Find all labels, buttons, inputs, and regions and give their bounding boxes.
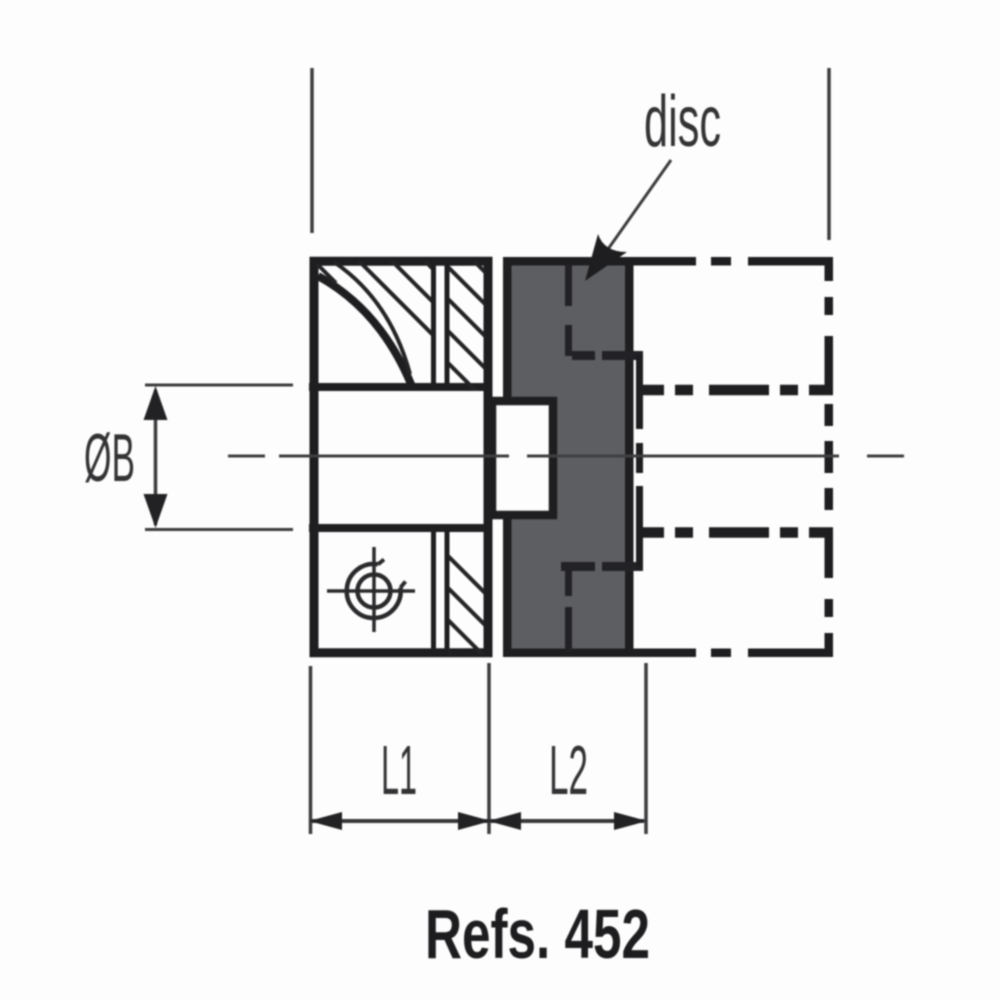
svg-text:ØB: ØB bbox=[84, 420, 135, 496]
svg-text:Refs. 452: Refs. 452 bbox=[425, 895, 650, 973]
svg-text:disc: disc bbox=[644, 82, 721, 162]
svg-text:L1: L1 bbox=[381, 731, 417, 809]
svg-text:L2: L2 bbox=[549, 731, 588, 809]
